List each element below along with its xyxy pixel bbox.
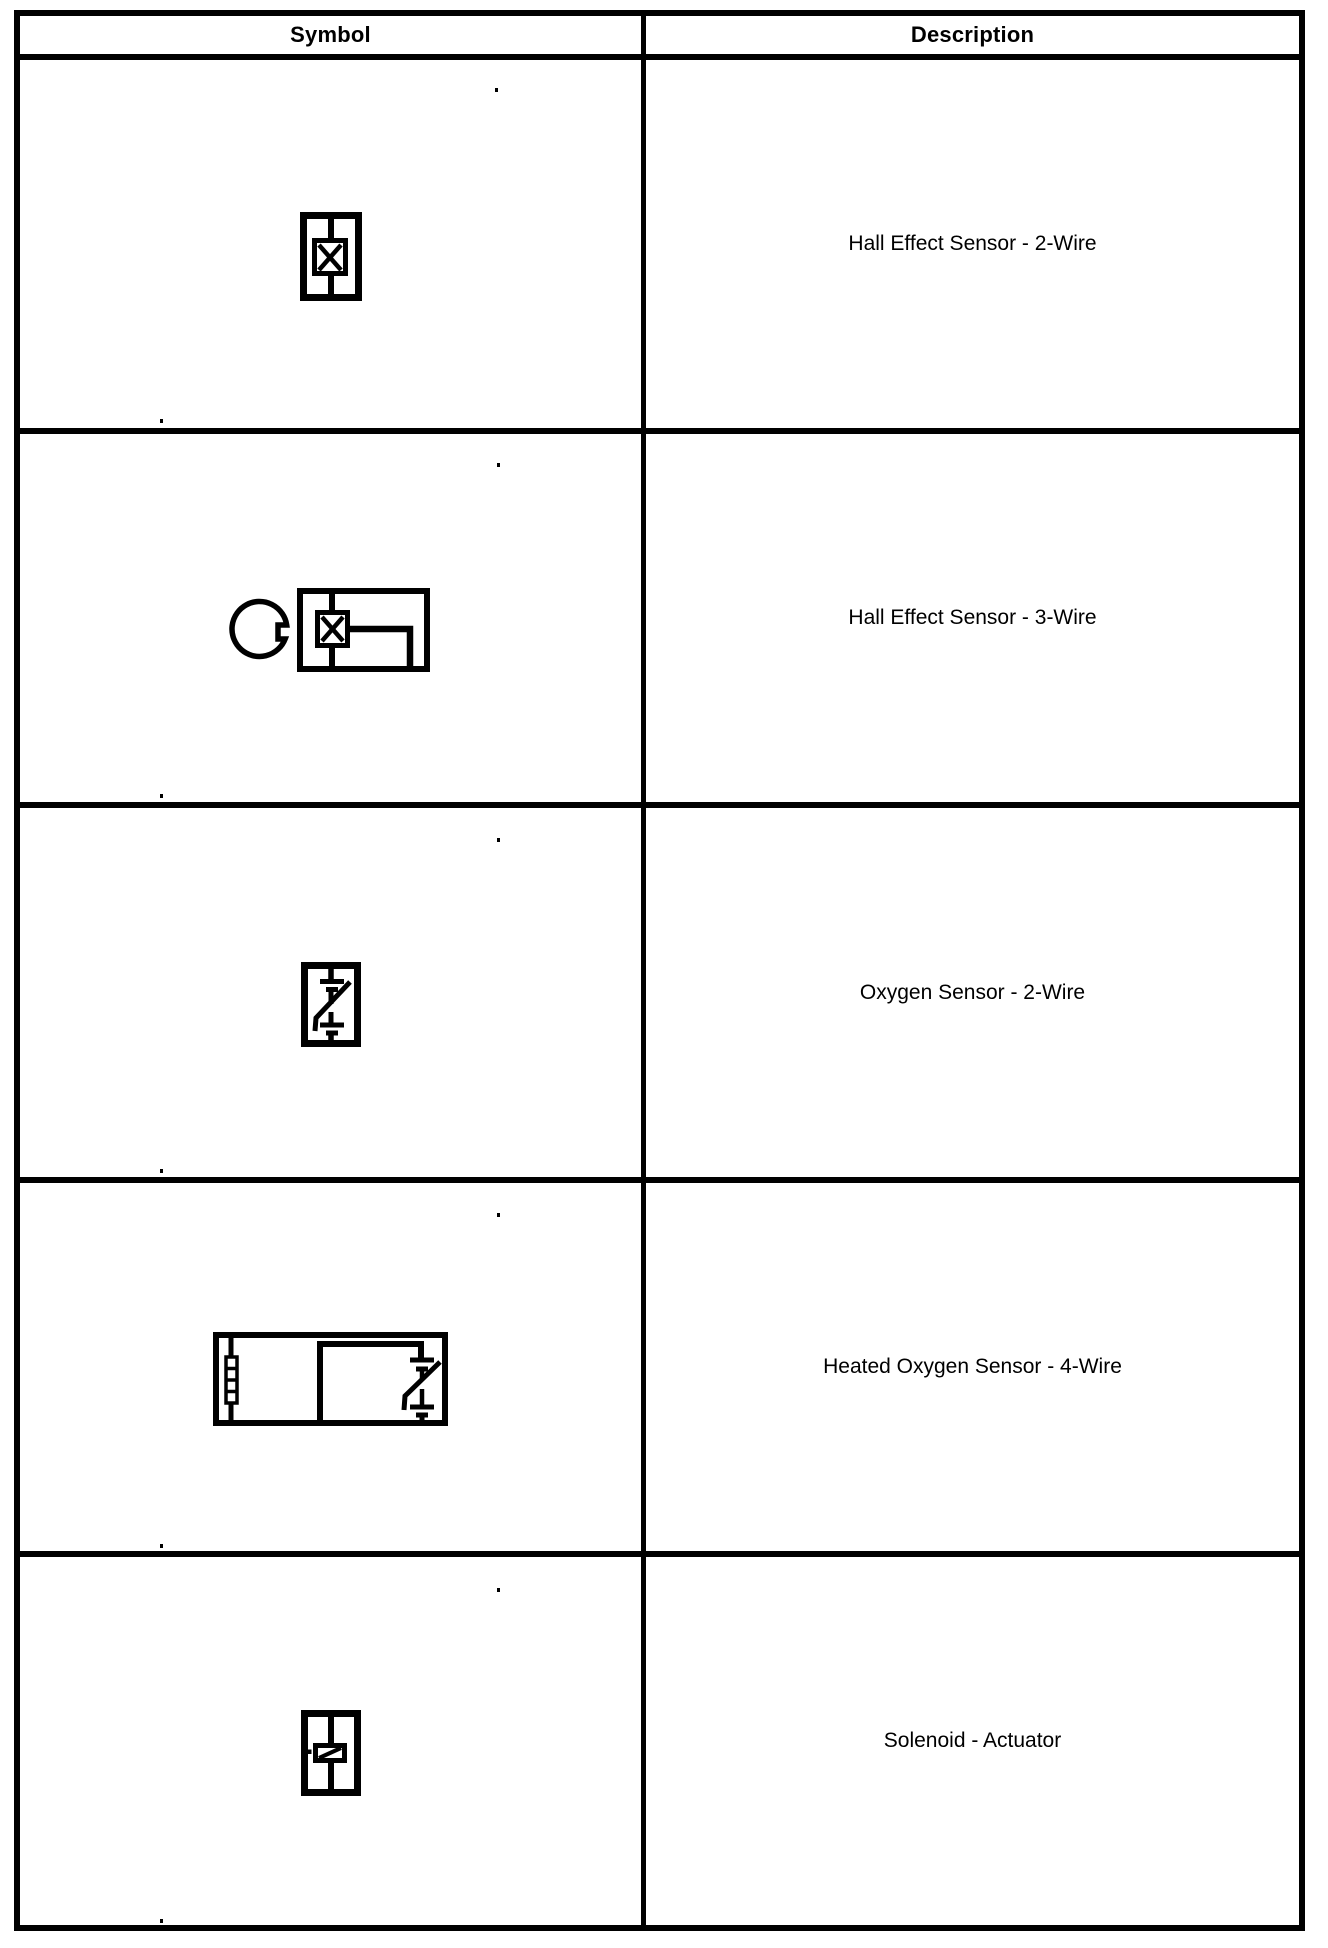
table-row: Oxygen Sensor - 2-Wire bbox=[20, 802, 1299, 1176]
symbol-cell bbox=[20, 808, 641, 1176]
solenoid-actuator-symbol bbox=[301, 1710, 361, 1796]
scan-artifact-dot bbox=[160, 1169, 163, 1173]
scan-artifact-dot bbox=[495, 88, 498, 92]
symbols-table: Symbol Description Hall Effect Sensor - … bbox=[14, 10, 1305, 1931]
symbol-column-header: Symbol bbox=[20, 16, 641, 54]
description-text: Hall Effect Sensor - 2-Wire bbox=[848, 232, 1096, 256]
scan-artifact-dot bbox=[160, 794, 163, 798]
scan-artifact-dot bbox=[160, 1919, 163, 1923]
description-text: Hall Effect Sensor - 3-Wire bbox=[848, 606, 1096, 630]
scan-artifact-dot bbox=[497, 1588, 500, 1592]
scan-artifact-dot bbox=[497, 463, 500, 467]
description-text: Solenoid - Actuator bbox=[884, 1729, 1061, 1753]
oxygen-sensor-2-wire-symbol bbox=[301, 962, 361, 1047]
table-header-row: Symbol Description bbox=[20, 16, 1299, 54]
table-row: Hall Effect Sensor - 2-Wire bbox=[20, 54, 1299, 428]
hall-effect-sensor-3-wire-symbol bbox=[228, 586, 433, 674]
description-text: Heated Oxygen Sensor - 4-Wire bbox=[823, 1355, 1122, 1379]
scan-artifact-dot bbox=[160, 419, 163, 423]
symbol-cell bbox=[20, 60, 641, 428]
hall-effect-sensor-2-wire-symbol bbox=[300, 212, 362, 301]
table-row: Solenoid - Actuator bbox=[20, 1551, 1299, 1925]
description-cell: Hall Effect Sensor - 2-Wire bbox=[641, 60, 1299, 428]
heated-oxygen-sensor-4-wire-symbol bbox=[213, 1332, 448, 1426]
document-page: { "table": { "header": { "symbol_label":… bbox=[0, 0, 1328, 1948]
description-cell: Hall Effect Sensor - 3-Wire bbox=[641, 434, 1299, 802]
description-cell: Heated Oxygen Sensor - 4-Wire bbox=[641, 1183, 1299, 1551]
description-text: Oxygen Sensor - 2-Wire bbox=[860, 981, 1085, 1005]
table-row: Heated Oxygen Sensor - 4-Wire bbox=[20, 1177, 1299, 1551]
symbol-cell bbox=[20, 1183, 641, 1551]
description-cell: Solenoid - Actuator bbox=[641, 1557, 1299, 1925]
symbol-cell bbox=[20, 434, 641, 802]
table-row: Hall Effect Sensor - 3-Wire bbox=[20, 428, 1299, 802]
scan-artifact-dot bbox=[497, 1213, 500, 1217]
description-column-header: Description bbox=[641, 16, 1299, 54]
symbol-cell bbox=[20, 1557, 641, 1925]
scan-artifact-dot bbox=[497, 838, 500, 842]
scan-artifact-dot bbox=[160, 1544, 163, 1548]
description-cell: Oxygen Sensor - 2-Wire bbox=[641, 808, 1299, 1176]
